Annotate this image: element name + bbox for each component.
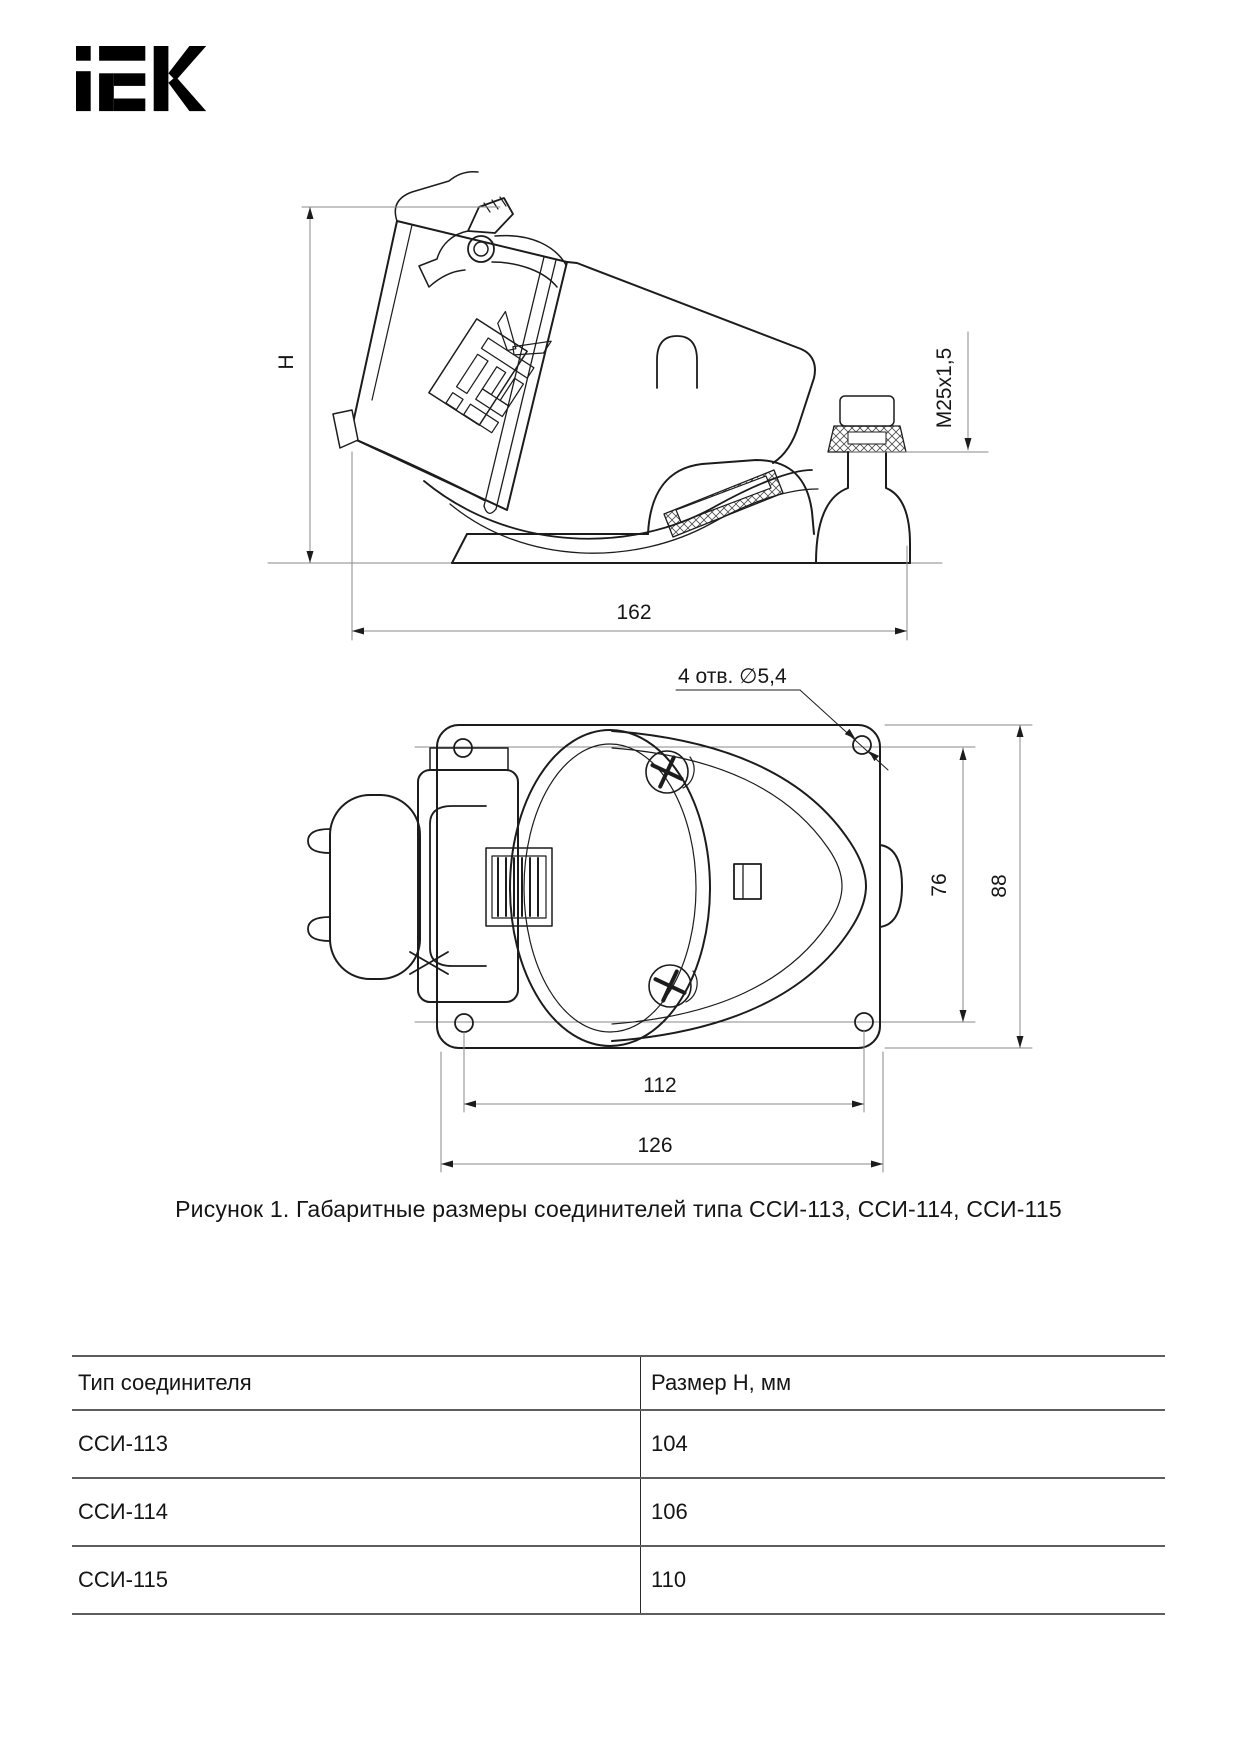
table-header-size: Размер Н, мм [641,1357,1165,1409]
dim-162-label: 162 [616,601,651,624]
connector-height: 110 [641,1547,1165,1613]
dim-126-label: 126 [637,1134,672,1157]
table-row: ССИ-113 104 [72,1411,1165,1479]
dim-88-label: 88 [988,874,1011,897]
datasheet-page: H 162 M25x1,5 [0,0,1237,1744]
brand-logo [76,46,206,111]
top-view: 4 отв. ∅5,4 76 88 112 126 [308,665,1032,1172]
thumb-notch [657,336,697,388]
connector-height: 104 [641,1411,1165,1477]
lever-thumb-pad [468,198,513,233]
lever-pivot [468,236,494,262]
figure-caption: Рисунок 1. Габаритные размеры соединител… [0,1196,1237,1223]
dim-holes-label: 4 отв. ∅5,4 [678,665,787,688]
mounting-hole [853,736,871,754]
dim-thread-label: M25x1,5 [933,348,956,429]
dim-112-label: 112 [643,1074,676,1097]
table-row: ССИ-115 110 [72,1547,1165,1615]
table-row: ССИ-114 106 [72,1479,1165,1547]
table-header-type: Тип соединителя [72,1357,641,1409]
mounting-flange [437,725,880,1048]
connector-type: ССИ-115 [72,1547,641,1613]
plug-cap [330,795,420,979]
technical-drawing: H 162 M25x1,5 [0,0,1237,1180]
latch-window [734,864,761,899]
screw [649,965,697,1008]
connector-height: 106 [641,1479,1165,1545]
table-header-row: Тип соединителя Размер Н, мм [72,1357,1165,1411]
connector-type: ССИ-113 [72,1411,641,1477]
latch-mark [410,952,448,974]
plug-collar [418,770,518,1002]
size-table: Тип соединителя Размер Н, мм ССИ-113 104… [72,1355,1165,1615]
dim-76-label: 76 [928,873,951,896]
connector-type: ССИ-114 [72,1479,641,1545]
side-view: H 162 M25x1,5 [268,172,988,640]
dim-height-label: H [275,354,298,369]
mounting-hole [455,1014,473,1032]
